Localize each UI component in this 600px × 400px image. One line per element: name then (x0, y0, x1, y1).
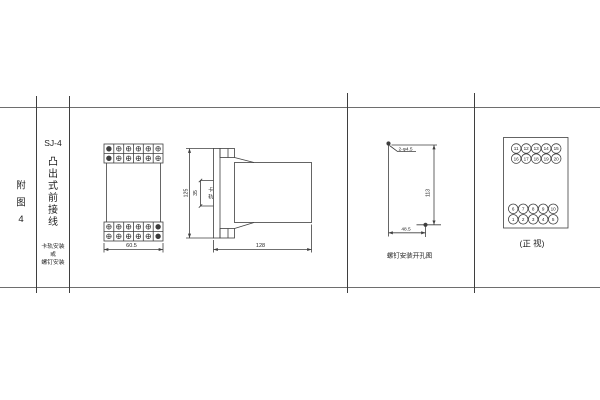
terminal-view-drawing: 11 12 13 14 15 16 17 18 19 20 6 7 8 9 10… (504, 138, 569, 249)
style-char: 出 (48, 167, 58, 180)
drill-horizontal-dim: 48.5 (401, 227, 411, 233)
terminal-number: 2 (522, 217, 525, 222)
style-char: 线 (48, 215, 58, 228)
terminal-number: 10 (551, 207, 557, 212)
mounting-note-line: 卡轨安装 (41, 242, 64, 250)
index-char: 图 (16, 198, 26, 209)
side-view-drawing: 125 35 卡 轨 128 (184, 149, 312, 253)
style-char: 式 (48, 179, 58, 192)
index-char: 附 (16, 180, 26, 192)
mounting-note-line: 螺钉安装 (41, 258, 64, 266)
terminal-number: 13 (534, 146, 540, 151)
model-label: SJ-4 (44, 138, 62, 148)
terminal-view-caption: (正 视) (519, 239, 544, 249)
terminal-number: 1 (512, 217, 515, 222)
style-char: 凸 (48, 156, 58, 168)
terminal-number: 6 (512, 207, 515, 212)
front-view-drawing: 60.5 (104, 144, 163, 253)
terminal-number: 14 (544, 146, 550, 151)
terminal-number: 5 (552, 217, 555, 222)
style-char: 前 (48, 191, 58, 204)
terminal-number: 8 (532, 207, 535, 212)
rail-label-char: 卡 (208, 186, 213, 193)
terminal-number: 9 (542, 207, 545, 212)
table-grid (0, 93, 600, 293)
rail-label-char: 轨 (208, 193, 213, 200)
terminal-number: 18 (534, 156, 540, 161)
figure-page: 附 图 4 SJ-4 凸 出 式 前 接 线 卡轨安装 或 螺钉安装 (0, 0, 600, 400)
terminal-number: 15 (554, 146, 560, 151)
drill-view-drawing: 2-φ4.5 113 48.5 螺钉安装开孔图 (386, 141, 441, 259)
style-char: 接 (48, 203, 58, 216)
rail-width-dim: 35 (193, 190, 199, 196)
drill-view-caption: 螺钉安装开孔图 (387, 251, 433, 260)
terminal-number: 17 (524, 156, 530, 161)
terminal-number: 16 (514, 156, 520, 161)
terminal-number: 11 (514, 146, 519, 151)
terminal-number: 7 (522, 207, 525, 212)
index-column: 附 图 4 (16, 180, 26, 226)
side-depth-dim: 128 (256, 243, 265, 249)
side-height-dim: 125 (184, 189, 190, 198)
mounting-note-line: 或 (50, 250, 56, 258)
front-width-dim: 60.5 (126, 243, 137, 249)
index-char: 4 (18, 214, 23, 225)
terminal-number: 4 (542, 217, 545, 222)
holes-label: 2-φ4.5 (399, 146, 413, 152)
terminal-number: 3 (532, 217, 535, 222)
figure-canvas: 附 图 4 SJ-4 凸 出 式 前 接 线 卡轨安装 或 螺钉安装 (0, 0, 600, 400)
terminal-number: 20 (554, 156, 560, 161)
terminal-number: 19 (544, 156, 550, 161)
title-column: SJ-4 凸 出 式 前 接 线 卡轨安装 或 螺钉安装 (41, 138, 64, 266)
terminal-number: 12 (524, 146, 530, 151)
drill-vertical-dim: 113 (426, 189, 432, 197)
